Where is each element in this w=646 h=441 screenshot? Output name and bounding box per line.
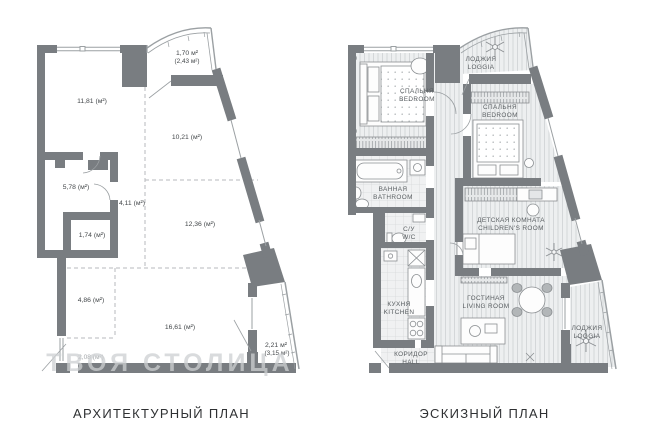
room-label-wc-en: W/C [402, 234, 416, 241]
desk-chair [527, 204, 539, 216]
architectural-plan: 11,81 (м²) 1,70 м² (2,43 м²) 10,21 (м²) … [0, 0, 323, 398]
nightstand [525, 159, 534, 168]
room-label-living-ru: ГОСТИНАЯ [467, 295, 505, 302]
area-label-2-43: (2,43 м²) [175, 58, 200, 65]
room-label-loggia-top-en: LOGGIA [468, 64, 495, 71]
room-label-bedroom-2-en: BEDROOM [482, 112, 518, 119]
room-label-wc-ru: С/У [403, 226, 415, 233]
wardrobe-bedroom-2 [471, 92, 529, 103]
windows [57, 47, 266, 362]
sofa [435, 346, 497, 363]
tv-unit [461, 277, 507, 283]
door-swings [42, 81, 251, 371]
area-label-12-36: 12,36 (м²) [185, 221, 215, 228]
room-label-loggia-top-ru: ЛОДЖИЯ [466, 56, 497, 63]
room-label-loggia-bottom-en: LOGGIA [574, 333, 601, 340]
sketch-plan: ЛОДЖИЯ LOGGIA СПАЛЬНЯ BEDROOM СПАЛЬНЯ BE… [323, 0, 646, 398]
sink-wc [413, 214, 425, 222]
room-label-loggia-bottom-ru: ЛОДЖИЯ [572, 325, 603, 332]
bed-children [457, 234, 515, 264]
area-label-2-21: 2,21 м² [265, 342, 288, 349]
room-label-bedroom-1-en: BEDROOM [399, 96, 435, 103]
area-label-10-21: 10,21 (м²) [172, 134, 202, 141]
room-label-hall-ru: КОРИДОР [394, 351, 428, 358]
room-label-hall-en: HALL [402, 359, 420, 366]
area-label-4-86: 4,86 (м²) [78, 297, 105, 304]
diagonal-wall [216, 69, 268, 257]
room-label-bedroom-2-ru: СПАЛЬНЯ [483, 104, 517, 111]
room-label-children-ru: ДЕТСКАЯ КОМНАТА [477, 217, 545, 224]
caption-architectural-plan: АРХИТЕКТУРНЫЙ ПЛАН [0, 400, 323, 421]
room-label-kitchen-ru: КУХНЯ [387, 301, 410, 308]
caption-sketch-plan: ЭСКИЗНЫЙ ПЛАН [323, 400, 646, 421]
coffee-table [461, 318, 505, 344]
captions: АРХИТЕКТУРНЫЙ ПЛАН ЭСКИЗНЫЙ ПЛАН [0, 400, 646, 421]
washing-machine [410, 160, 425, 175]
room-label-living-en: LIVING ROOM [462, 303, 509, 310]
room-label-kitchen-en: KITCHEN [384, 309, 415, 316]
bathtub [353, 160, 407, 182]
room-label-bathroom-ru: ВАННАЯ [379, 186, 408, 193]
area-label-5-78: 5,78 (м²) [63, 184, 90, 191]
area-label-11-81: 11,81 (м²) [77, 98, 107, 105]
area-label-4-11: 4,11 (м²) [119, 200, 145, 207]
area-label-1-70: 1,70 м² [176, 50, 199, 57]
area-label-16-61: 16,61 (м²) [165, 324, 195, 331]
area-label-3-15: (3,15 м²) [265, 350, 290, 357]
area-label-1-74: 1,74 (м²) [79, 232, 106, 239]
room-label-children-en: CHILDREN'S ROOM [478, 225, 544, 232]
room-label-bathroom-en: BATHROOM [373, 194, 413, 201]
room-label-bedroom-1-ru: СПАЛЬНЯ [400, 88, 434, 95]
area-label-2-08: 2,08 (м²) [78, 354, 104, 361]
